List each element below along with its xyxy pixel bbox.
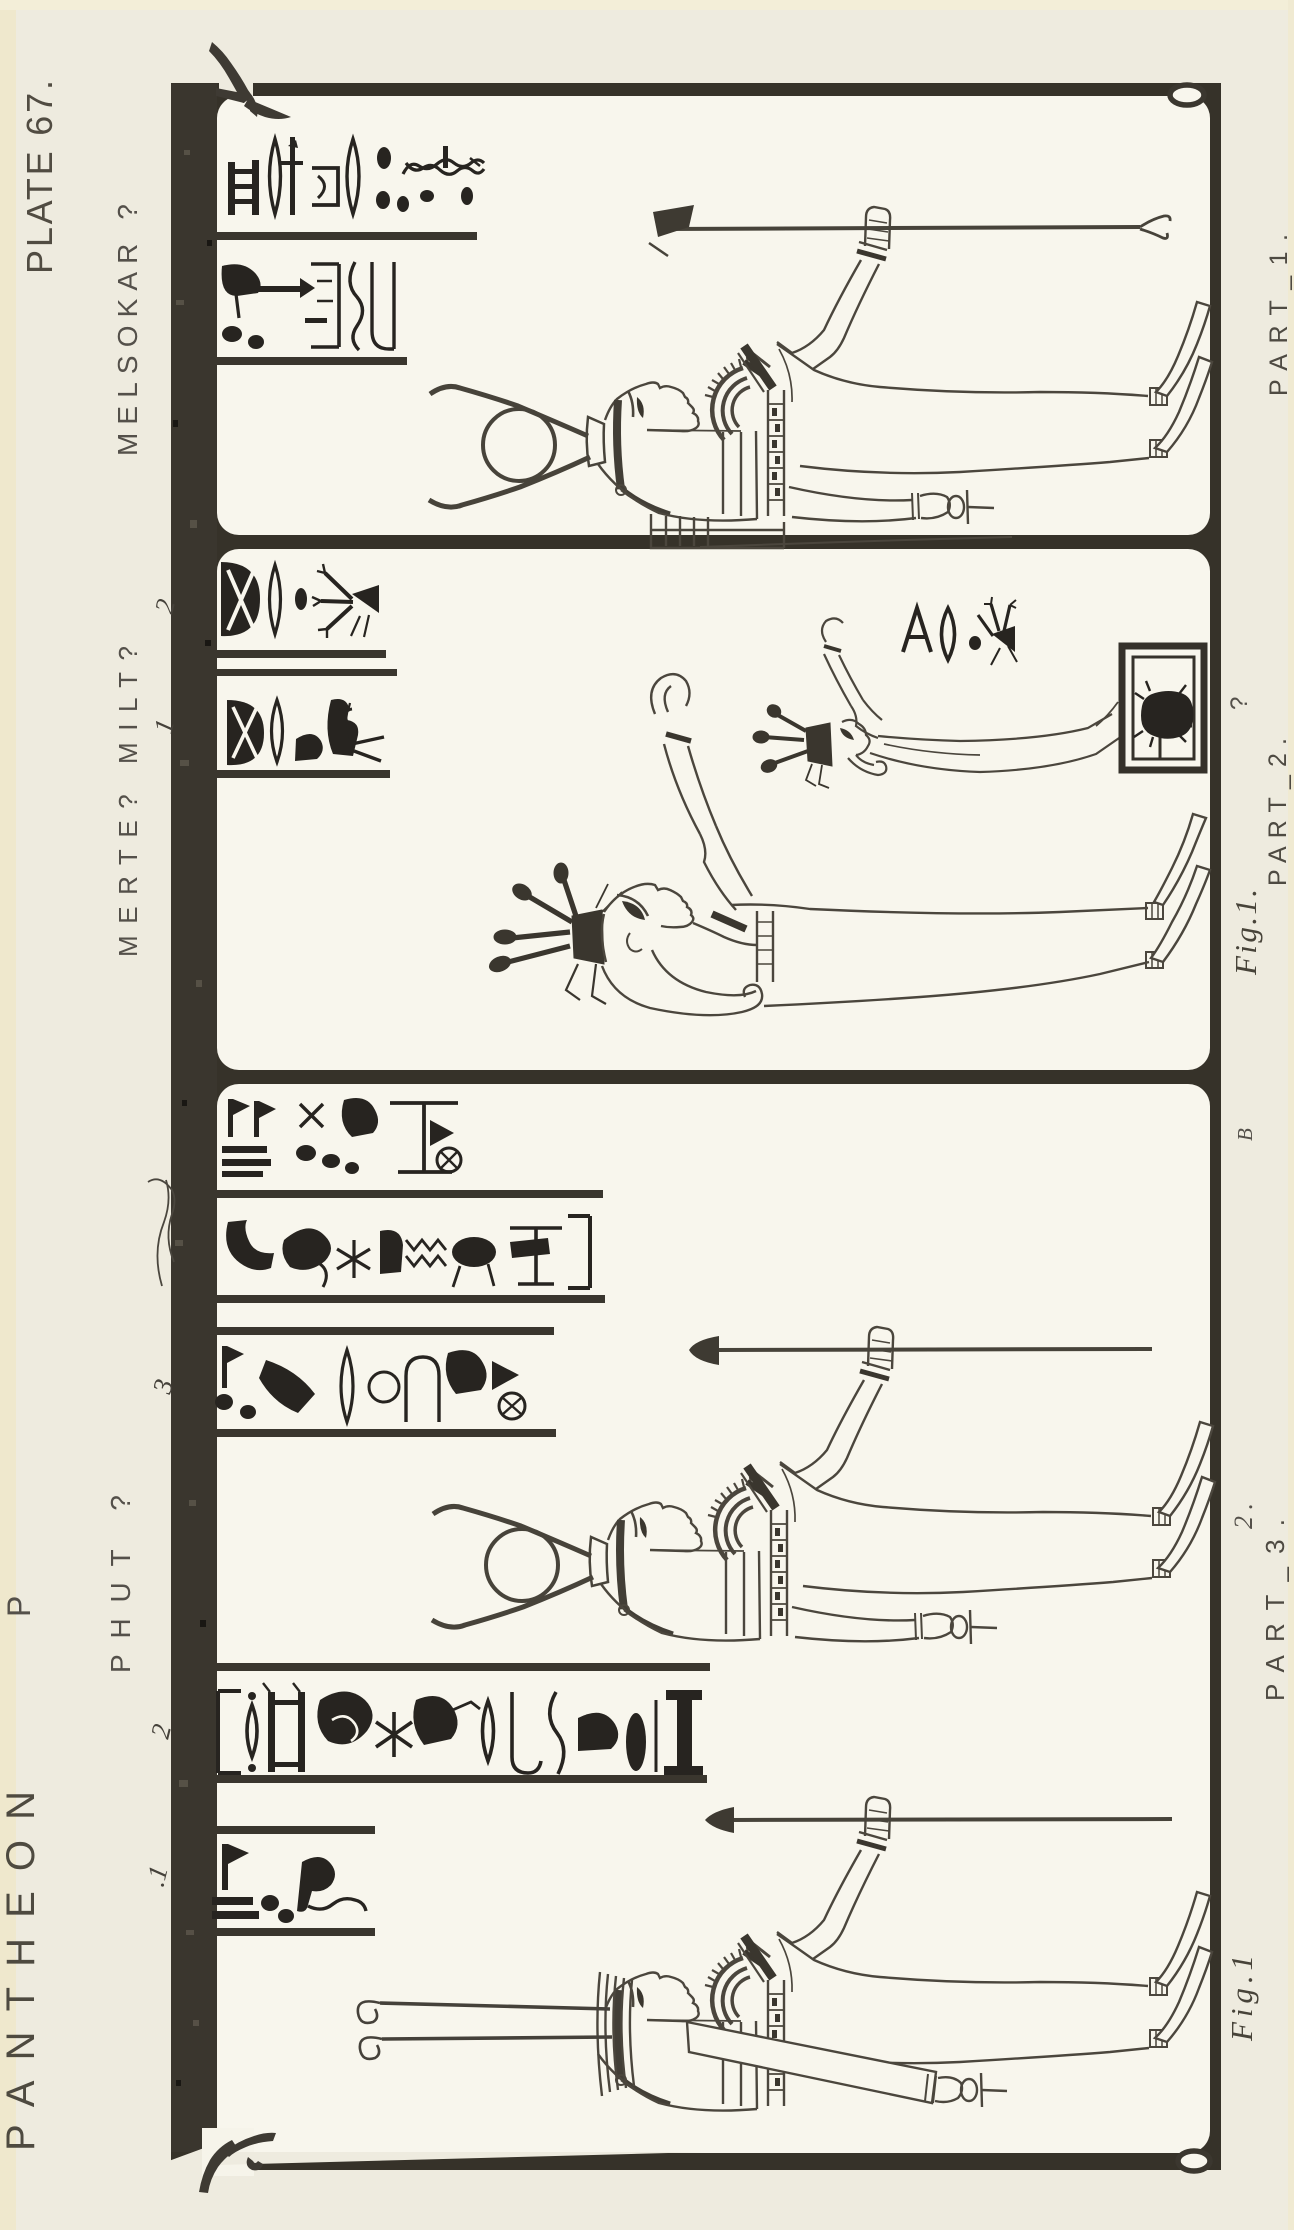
svg-text:PART_2.: PART_2. xyxy=(1264,738,1292,886)
svg-text:P: P xyxy=(1,1596,37,1617)
svg-text:PLATE 67.: PLATE 67. xyxy=(19,76,60,274)
svg-text:2 .: 2 . xyxy=(1229,1503,1258,1529)
svg-text:Fig.1: Fig.1 xyxy=(1224,1955,1259,2042)
svg-text:Fig.1.: Fig.1. xyxy=(1228,889,1263,976)
svg-text:?: ? xyxy=(1226,697,1253,710)
svg-text:B: B xyxy=(1233,1128,1257,1141)
